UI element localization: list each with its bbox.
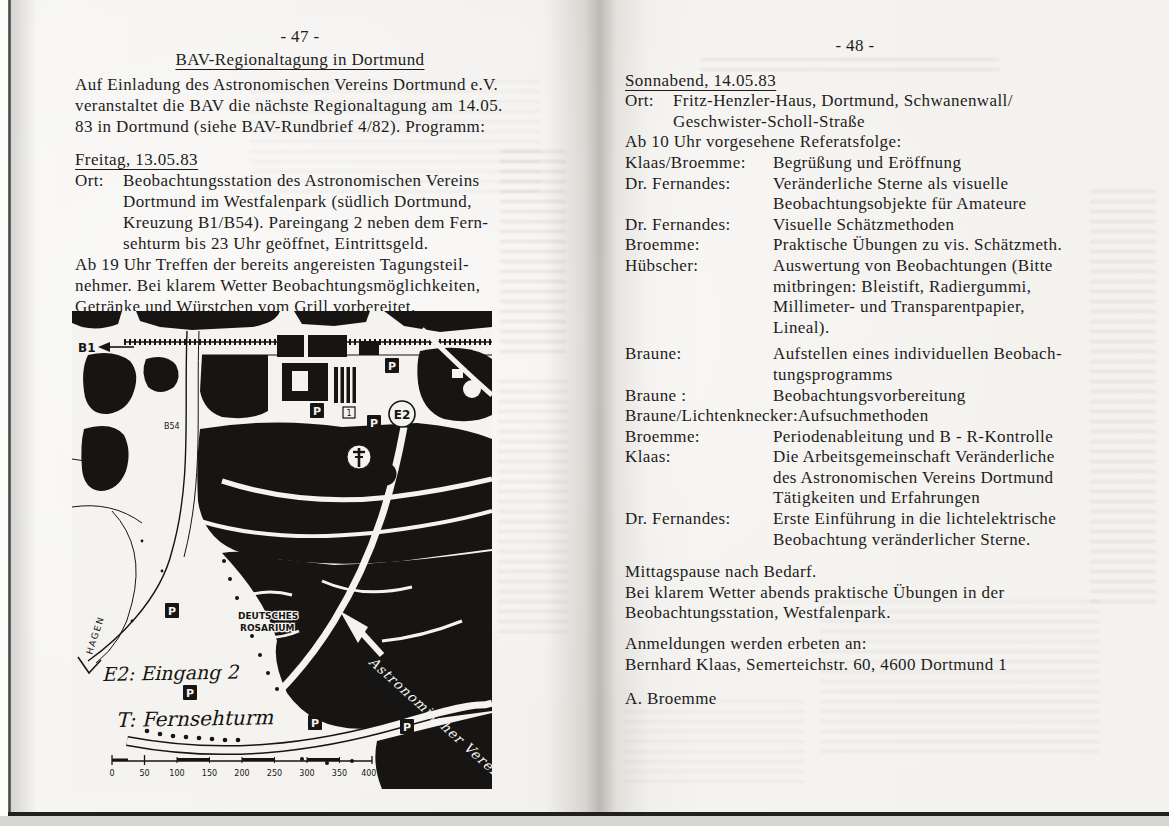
westfalenpark-map: B1 B54 HAGEN (72, 311, 492, 792)
scan-left-margin (0, 0, 8, 816)
left-page: - 47 - BAV-Regionaltagung in Dortmund Au… (75, 26, 553, 317)
schedule-row: Dr. Fernandes: Erste Einführung in die l… (625, 509, 1095, 550)
speaker: Braune/Lichtenknecker: (625, 406, 798, 427)
speaker: Klaas/Broemme: (625, 153, 773, 174)
parking-icon: P (168, 605, 176, 618)
speaker: Braune : (625, 386, 773, 407)
speaker: Dr. Fernandes: (625, 509, 773, 530)
signature: A. Broemme (625, 689, 1095, 710)
schedule-row: Klaas/Broemme: Begrüßung und Eröffnung (625, 153, 1095, 174)
talk-topic: Auswertung von Beobachtungen (Bitte mitb… (773, 256, 1053, 338)
talk-topic: Beobachtungsvorbereitung (773, 386, 966, 407)
svg-text:200: 200 (234, 769, 249, 778)
talk-topic: Begrüßung und Eröffnung (773, 153, 961, 174)
round-building (374, 463, 397, 486)
speaker: Hübscher: (625, 256, 773, 277)
talk-topic: Erste Einführung in die lichtelektrische… (773, 509, 1056, 550)
talk-topic: Aufstellen eines individuellen Beobach- … (773, 344, 1062, 385)
freitag-heading: Freitag, 13.05.83 (75, 149, 553, 170)
article-title: BAV-Regionaltagung in Dortmund (75, 49, 525, 70)
svg-text:300: 300 (299, 769, 314, 778)
schedule-row: Dr. Fernandes: Visuelle Schätzmethoden (625, 215, 1095, 236)
ort-label: Ort: (75, 170, 123, 191)
svg-text:50: 50 (139, 769, 149, 778)
speaker: Klaas: (625, 447, 773, 468)
svg-text:350: 350 (332, 769, 347, 778)
svg-text:250: 250 (267, 769, 282, 778)
b1-text: B1 (78, 341, 96, 355)
svg-text:400 m: 400 m (361, 769, 387, 778)
closing-paragraph: Mittagspause nach Bedarf. Bei klarem Wet… (625, 562, 1095, 624)
speaker: Dr. Fernandes: (625, 174, 773, 195)
marker-1: 1 (343, 407, 355, 418)
page-edge-shadow (11, 0, 37, 816)
svg-text:1: 1 (346, 409, 351, 418)
schedule-row: Broemme: Periodenableitung und B - R-Kon… (625, 427, 1095, 448)
svg-text:E2: E2 (394, 408, 411, 422)
schedule-row: Dr. Fernandes: Veränderliche Sterne als … (625, 174, 1095, 215)
svg-text:150: 150 (202, 769, 217, 778)
legend-t: T: Fernsehturm (116, 705, 274, 732)
svg-text:DEUTSCHES: DEUTSCHES (238, 611, 298, 621)
talk-topic: Praktische Übungen zu vis. Schätzmeth. (773, 235, 1062, 256)
ab19-paragraph: Ab 19 Uhr Treffen der bereits angereiste… (75, 254, 553, 317)
speaker: Broemme: (625, 235, 773, 256)
svg-text:ROSARIUM: ROSARIUM (240, 623, 295, 633)
svg-text:0: 0 (109, 769, 114, 778)
parking-icon: P (370, 417, 378, 430)
speaker: Braune: (625, 344, 773, 365)
parking-icon: P (313, 405, 321, 418)
fernsehturm-marker (347, 445, 371, 469)
ort-row-right: Ort: Fritz-Henzler-Haus, Dortmund, Schwa… (625, 91, 1095, 132)
talk-topic: Aufsuchmethoden (798, 406, 929, 427)
bleed-through-artifact (498, 380, 568, 640)
schedule-row: Braune: Aufstellen eines individuellen B… (625, 344, 1095, 385)
talk-topic: Visuelle Schätzmethoden (773, 215, 954, 236)
intro-paragraph: Auf Einladung des Astronomischen Vereins… (75, 74, 553, 137)
entrance-e2-marker: E2 (389, 401, 415, 427)
svg-text:100: 100 (169, 769, 184, 778)
right-page: - 48 - Sonnabend, 14.05.83 Ort: Fritz-He… (625, 36, 1095, 710)
schedule-row: Braune/Lichtenknecker: Aufsuchmethoden (625, 406, 1095, 427)
referatsfolge-line: Ab 10 Uhr vorgesehene Referatsfolge: (625, 132, 1095, 153)
parking-icon: P (311, 717, 319, 730)
page-number-right: - 48 - (625, 36, 1085, 57)
parking-icon: P (186, 687, 194, 700)
schedule-row: Braune : Beobachtungsvorbereitung (625, 386, 1095, 407)
ort-text: Beobachtungsstation des Astronomischen V… (123, 170, 488, 254)
ort-text: Fritz-Henzler-Haus, Dortmund, Schwanenwa… (673, 91, 1013, 132)
ort-row-left: Ort: Beobachtungsstation des Astronomisc… (75, 170, 553, 254)
speaker: Broemme: (625, 427, 773, 448)
schedule-row: Klaas: Die Arbeitsgemeinschaft Veränderl… (625, 447, 1095, 509)
scan-bottom-strip (0, 816, 1169, 826)
speaker: Dr. Fernandes: (625, 215, 773, 236)
bleed-through-artifact (1090, 190, 1156, 610)
page-number-left: - 47 - (75, 26, 525, 47)
talk-topic: Veränderliche Sterne als visuelle Beobac… (773, 174, 1027, 215)
parking-icon: P (403, 721, 411, 734)
schedule-row: Hübscher: Auswertung von Beobachtungen (… (625, 256, 1095, 338)
ort-label: Ort: (625, 91, 673, 112)
parking-icon: P (388, 360, 396, 373)
b54-road-label: B54 (164, 422, 180, 431)
schedule-row: Broemme: Praktische Übungen zu vis. Schä… (625, 235, 1095, 256)
bleed-through-artifact (625, 700, 805, 790)
legend-e2: E2: Eingang 2 (102, 661, 241, 686)
sonnabend-heading: Sonnabend, 14.05.83 (625, 71, 1095, 92)
talk-topic: Periodenableitung und B - R-Kontrolle (773, 427, 1053, 448)
anmeldung-paragraph: Anmeldungen werden erbeten an: Bernhard … (625, 634, 1095, 675)
scanned-book-spread: - 47 - BAV-Regionaltagung in Dortmund Au… (0, 0, 1169, 826)
talk-topic: Die Arbeitsgemeinschaft Veränderliche de… (773, 447, 1055, 509)
